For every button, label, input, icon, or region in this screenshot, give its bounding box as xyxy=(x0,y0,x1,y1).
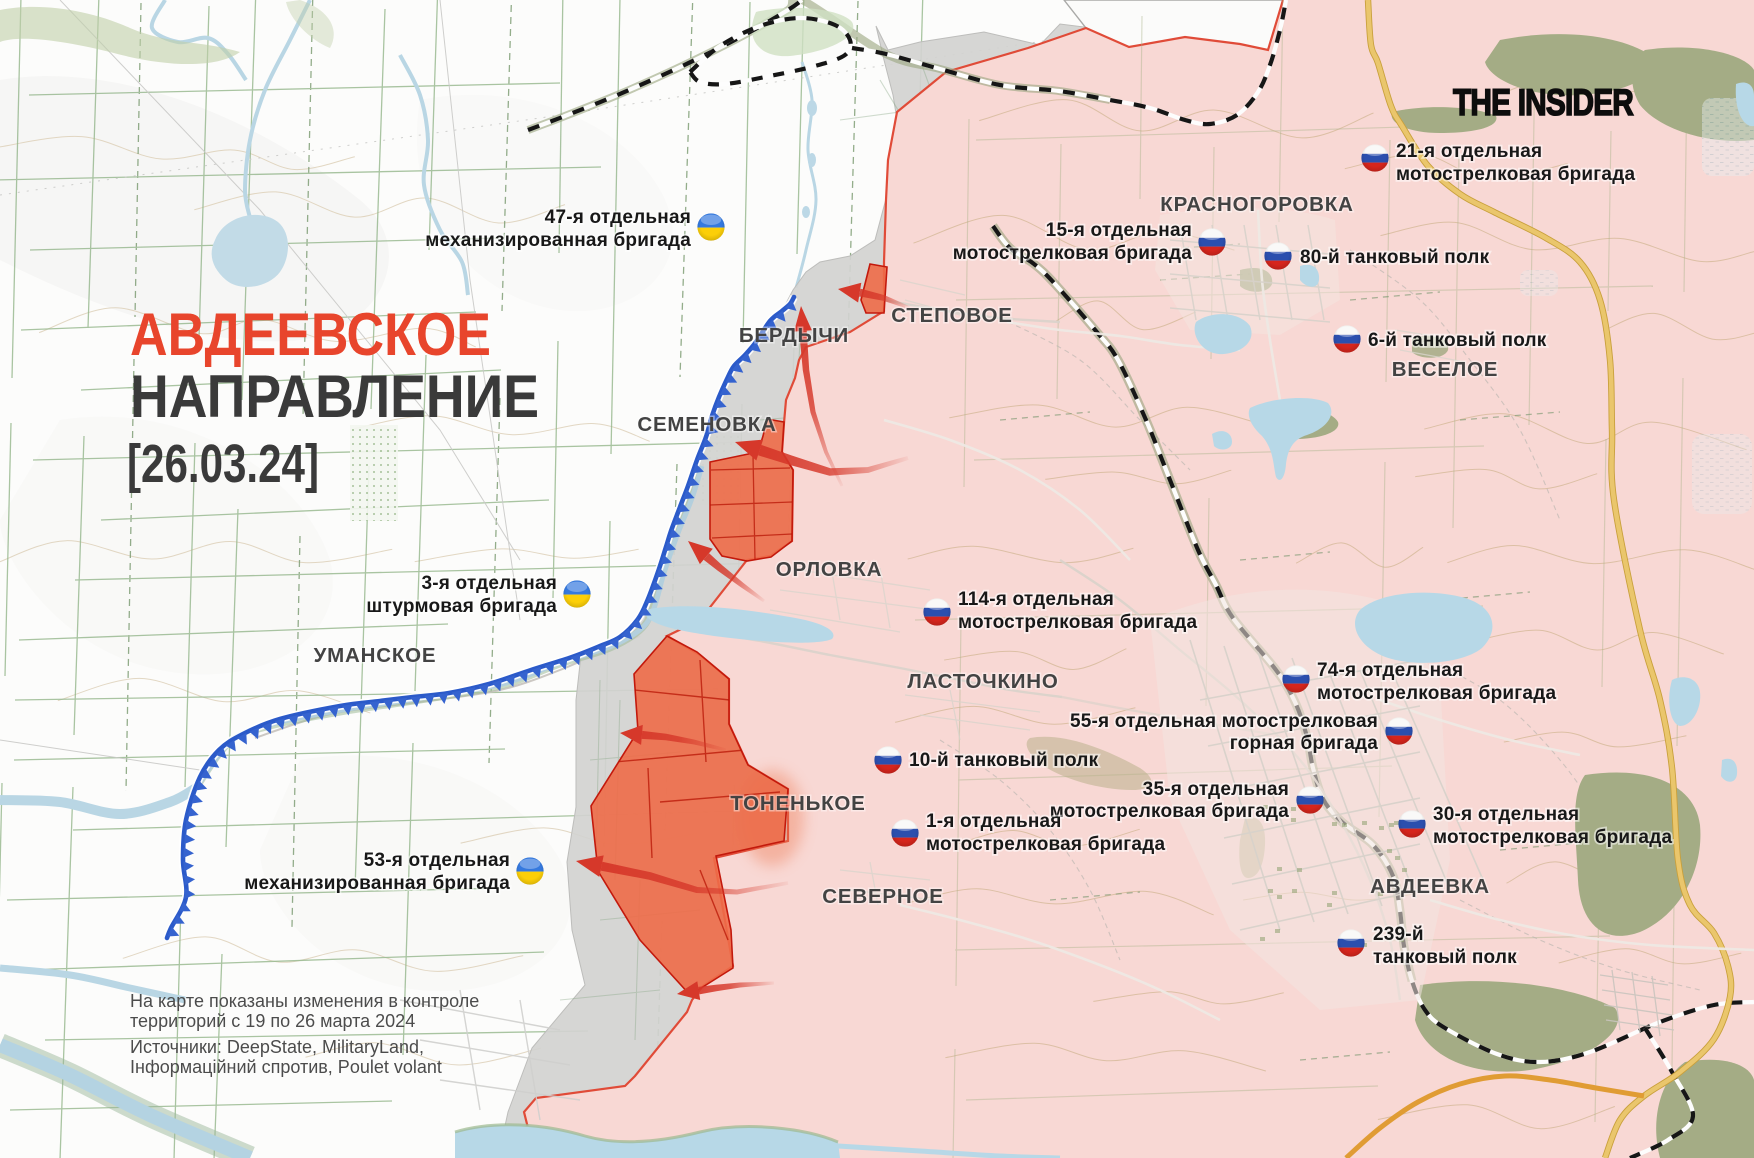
svg-text:ЛАСТОЧКИНО: ЛАСТОЧКИНО xyxy=(907,670,1058,693)
svg-text:Інформаційний спротив, Poulet: Інформаційний спротив, Poulet volant xyxy=(130,1057,442,1077)
svg-text:80-й танковый полк: 80-й танковый полк xyxy=(1300,247,1490,268)
svg-text:СТЕПОВОЕ: СТЕПОВОЕ xyxy=(891,304,1012,327)
svg-text:ОРЛОВКА: ОРЛОВКА xyxy=(776,558,882,581)
svg-text:АВДЕЕВКА: АВДЕЕВКА xyxy=(1370,875,1490,898)
svg-text:БЕРДЫЧИ: БЕРДЫЧИ xyxy=(739,324,849,347)
svg-text:СЕМЕНОВКА: СЕМЕНОВКА xyxy=(637,413,776,436)
svg-text:На карте показаны изменения в: На карте показаны изменения в контроле xyxy=(130,991,479,1011)
svg-text:ТОНЕНЬКОЕ: ТОНЕНЬКОЕ xyxy=(730,792,865,815)
svg-text:СЕВЕРНОЕ: СЕВЕРНОЕ xyxy=(822,885,943,908)
svg-text:10-й танковый полк: 10-й танковый полк xyxy=(909,750,1099,771)
svg-text:ВЕСЕЛОЕ: ВЕСЕЛОЕ xyxy=(1392,358,1499,381)
svg-text:6-й танковый полк: 6-й танковый полк xyxy=(1368,330,1547,351)
svg-text:УМАНСКОЕ: УМАНСКОЕ xyxy=(314,644,437,667)
svg-text:[26.03.24]: [26.03.24] xyxy=(127,434,319,494)
svg-text:территорий с 19 по 26 марта 20: территорий с 19 по 26 марта 2024 xyxy=(130,1011,415,1031)
svg-text:THE INSIDER: THE INSIDER xyxy=(1453,82,1633,123)
svg-text:Источники: DeepState, Military: Источники: DeepState, MilitaryLand, xyxy=(130,1037,424,1057)
svg-text:НАПРАВЛЕНИЕ: НАПРАВЛЕНИЕ xyxy=(130,363,539,430)
svg-text:АВДЕЕВСКОЕ: АВДЕЕВСКОЕ xyxy=(130,301,491,368)
svg-text:КРАСНОГОРОВКА: КРАСНОГОРОВКА xyxy=(1160,193,1353,216)
